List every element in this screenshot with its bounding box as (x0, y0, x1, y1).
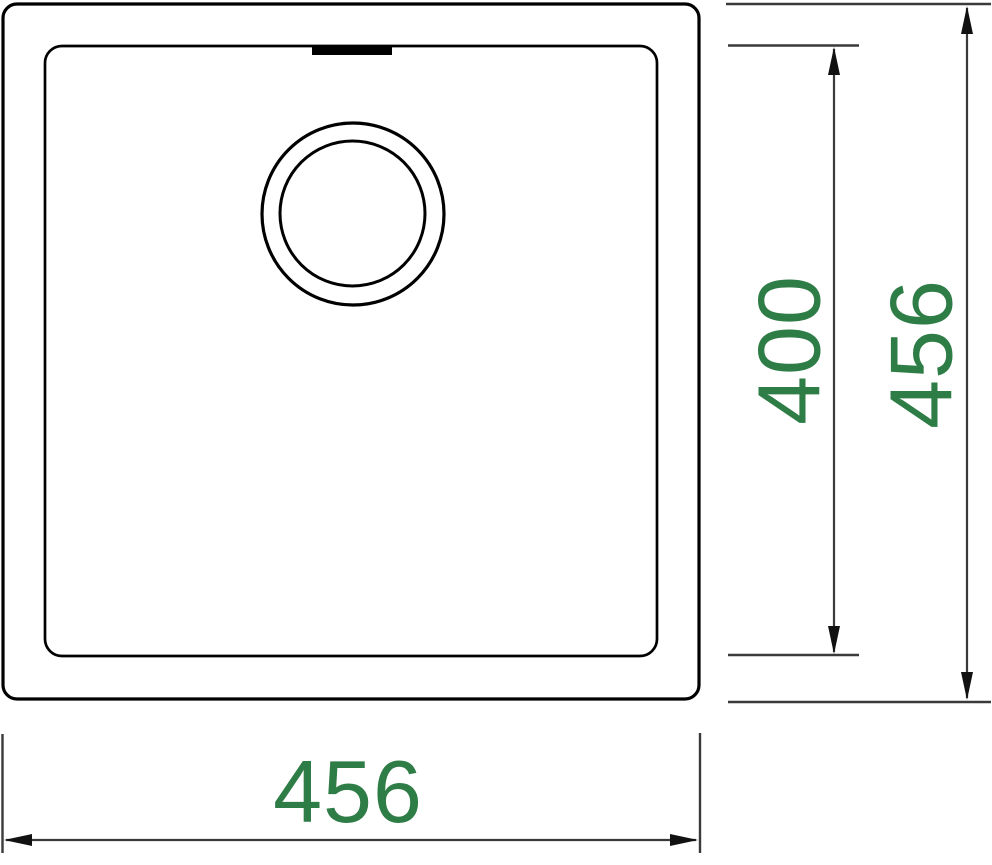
arrow-up-icon (828, 47, 840, 75)
drain-inner-ring (280, 141, 425, 286)
dim-label-outer-vertical: 456 (872, 279, 971, 429)
sink-dimension-drawing: 400 456 456 (0, 0, 992, 865)
sink-top-view (3, 4, 699, 699)
sink-bowl-edge (45, 46, 657, 656)
drawing-canvas: 400 456 456 (0, 0, 992, 865)
arrow-up-icon (961, 6, 973, 34)
arrow-left-icon (4, 834, 32, 846)
dimension-bowl-vertical: 400 (728, 46, 859, 656)
arrow-down-icon (828, 626, 840, 654)
dim-label-bowl-vertical: 400 (740, 275, 839, 425)
sink-outer-edge (3, 4, 699, 699)
overflow-slot (312, 47, 392, 56)
dim-label-outer-horizontal: 456 (273, 742, 423, 841)
dimension-outer-horizontal: 456 (3, 733, 701, 853)
arrow-down-icon (961, 672, 973, 700)
arrow-right-icon (670, 834, 698, 846)
drain-outer-ring (262, 123, 444, 305)
